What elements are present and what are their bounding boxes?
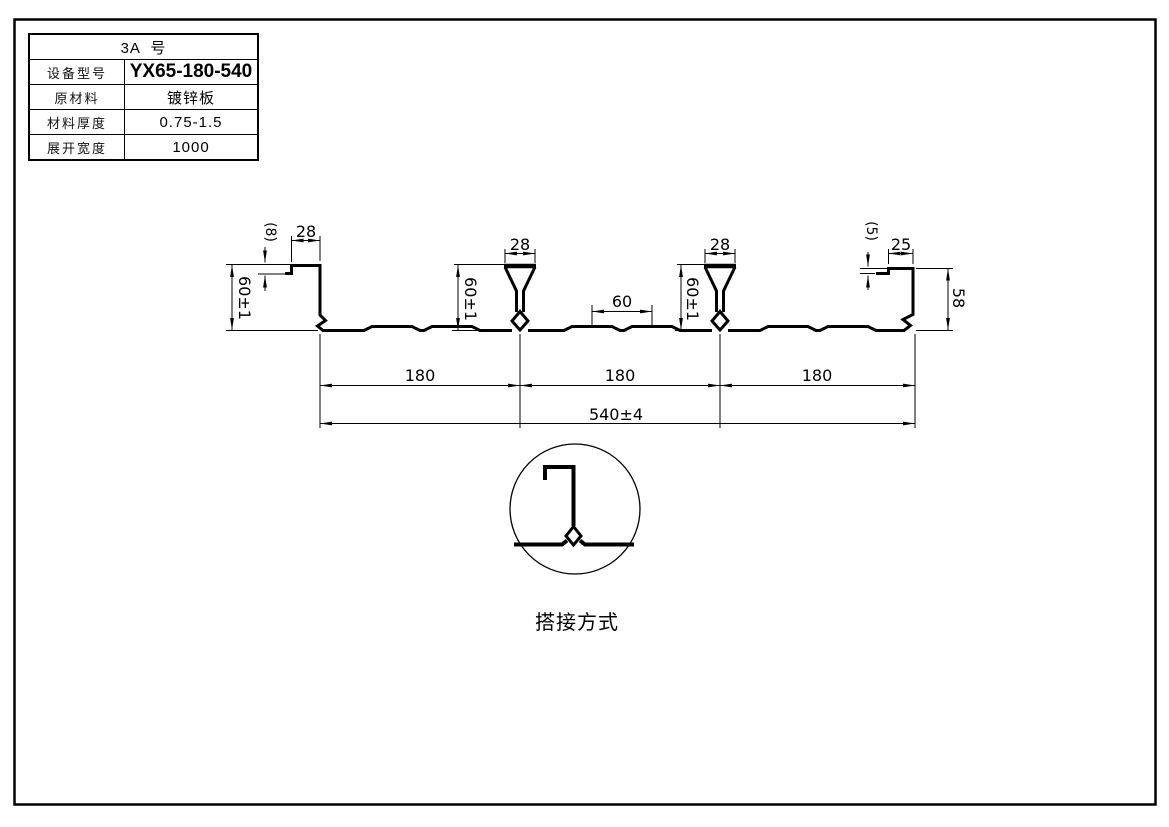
spec-row-feed-width: 展开宽度 1000 bbox=[29, 135, 258, 161]
profile-mid-section bbox=[528, 327, 712, 331]
detail-crimp-diamond bbox=[566, 527, 581, 546]
dim-rib2-width: 28 bbox=[710, 235, 730, 254]
dim-left-flange: 28 bbox=[296, 222, 316, 241]
dim-pitch-3: 180 bbox=[802, 366, 833, 385]
rib2-left-side bbox=[705, 267, 717, 312]
detail-base-right bbox=[580, 541, 634, 545]
dim-pitch-1: 180 bbox=[405, 366, 436, 385]
detail-base-left bbox=[514, 541, 567, 545]
dim-right-flange: 25 bbox=[891, 235, 911, 254]
spec-row-model: 设备型号 YX65-180-540 bbox=[29, 60, 258, 85]
thickness-label: 材料厚度 bbox=[29, 110, 125, 135]
dim-emboss-spacing: 60 bbox=[612, 292, 632, 311]
model-label: 设备型号 bbox=[29, 60, 125, 85]
feed-width-label: 展开宽度 bbox=[29, 135, 125, 161]
spec-row-material: 原材料 镀锌板 bbox=[29, 85, 258, 110]
model-value: YX65-180-540 bbox=[125, 60, 259, 85]
dim-rib1-width: 28 bbox=[510, 235, 530, 254]
feed-width-value: 1000 bbox=[125, 135, 259, 161]
profile-right-section bbox=[728, 269, 913, 331]
rib1-bottom-diamond bbox=[512, 312, 528, 331]
drawing-sheet: (8) 28 60±1 28 60±1 60 28 60±1 (5) 25 58… bbox=[0, 0, 1169, 827]
material-label: 原材料 bbox=[29, 85, 125, 110]
dim-left-lip: (8) bbox=[262, 222, 278, 242]
rib1-left-side bbox=[505, 267, 517, 312]
dim-right-web: 58 bbox=[949, 288, 968, 308]
dim-cover-width: 540±4 bbox=[589, 405, 643, 424]
dim-pitch-2: 180 bbox=[605, 366, 636, 385]
dimension-labels: (8) 28 60±1 28 60±1 60 28 60±1 (5) 25 58… bbox=[235, 221, 968, 424]
dim-right-lip: (5) bbox=[863, 221, 879, 241]
profile-outline bbox=[285, 266, 913, 331]
lap-caption: 搭接方式 bbox=[497, 606, 657, 635]
rib1-right-side bbox=[524, 267, 536, 312]
sheet-number: 3A 号 bbox=[29, 34, 258, 60]
thickness-value: 0.75-1.5 bbox=[125, 110, 259, 135]
lap-detail bbox=[510, 444, 640, 574]
dim-rib2-height: 60±1 bbox=[683, 277, 702, 321]
spec-row-thickness: 材料厚度 0.75-1.5 bbox=[29, 110, 258, 135]
spec-table: 3A 号 设备型号 YX65-180-540 原材料 镀锌板 材料厚度 0.75… bbox=[28, 33, 259, 161]
detail-hook-profile bbox=[545, 467, 574, 526]
dim-rib1-height: 60±1 bbox=[461, 277, 480, 321]
rib2-bottom-diamond bbox=[712, 312, 728, 331]
rib2-right-side bbox=[724, 267, 736, 312]
material-value: 镀锌板 bbox=[125, 85, 259, 110]
dim-left-web: 60±1 bbox=[235, 276, 254, 320]
spec-row-title: 3A 号 bbox=[29, 34, 258, 60]
